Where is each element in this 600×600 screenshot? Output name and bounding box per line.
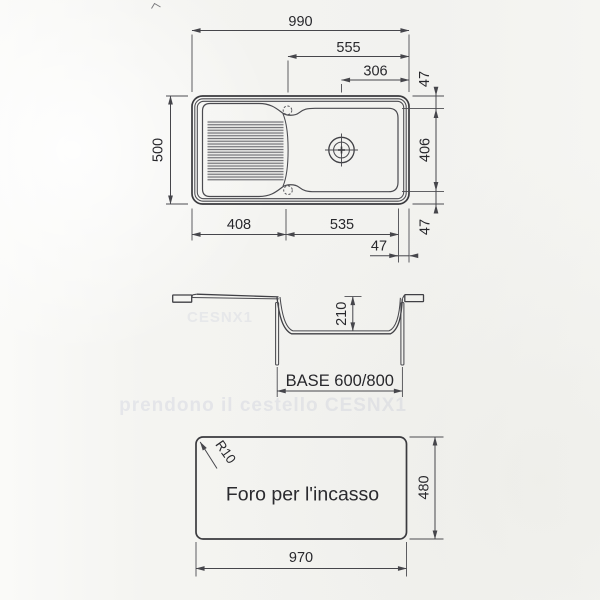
drainboard-surface-under bbox=[192, 298, 279, 299]
dim-990-label: 990 bbox=[288, 14, 312, 30]
radius-label: R10 bbox=[212, 437, 238, 466]
dim-rim-right-label: 47 bbox=[371, 239, 387, 255]
counter-edge-right bbox=[405, 295, 424, 302]
dim-970-label: 970 bbox=[289, 550, 313, 566]
drainboard-ribs bbox=[208, 121, 284, 182]
dim-bowl-span: 555 bbox=[288, 40, 409, 93]
drain-symbol-icon bbox=[325, 134, 358, 167]
dim-408-label: 408 bbox=[227, 217, 251, 233]
base-label: BASE 600/800 bbox=[286, 372, 394, 390]
dim-406-label: 406 bbox=[418, 138, 434, 162]
dim-rim-top-label: 47 bbox=[417, 71, 433, 87]
dim-rim-bottom-label: 47 bbox=[418, 219, 434, 235]
cutout-caption: Foro per l'incasso bbox=[226, 484, 379, 506]
dim-cutout-width: 970 bbox=[196, 542, 407, 577]
dim-535-label: 535 bbox=[330, 217, 354, 233]
dim-cutout-height: 480 bbox=[410, 437, 444, 539]
plan-view: 990 555 306 500 bbox=[151, 14, 445, 263]
tap-hole-bottom-icon bbox=[284, 186, 293, 195]
dim-bowl-depth: 210 bbox=[334, 297, 362, 331]
drainer-divider-curve bbox=[283, 114, 288, 186]
dim-base: BASE 600/800 bbox=[277, 367, 402, 397]
cutout-view: R10 Foro per l'incasso 480 970 bbox=[196, 437, 444, 577]
dim-306-label: 306 bbox=[363, 64, 387, 80]
cabinet-side-left bbox=[276, 303, 279, 366]
bleedthrough-text-1: CESNX1 bbox=[187, 309, 253, 326]
counter-edge-left bbox=[173, 295, 192, 302]
cabinet-side-right bbox=[401, 303, 404, 366]
dim-drain-offset: 306 bbox=[342, 64, 410, 93]
drainboard-surface bbox=[197, 294, 279, 297]
tap-hole-top-icon bbox=[283, 106, 292, 115]
bleedthrough-text-2: prendono il cestello CESNX1 bbox=[119, 395, 407, 416]
dim-bottom-chain: 408 535 47 bbox=[192, 209, 418, 263]
sink-drawing-canvas: CESNX1 prendono il cestello CESNX1 990 bbox=[0, 0, 600, 600]
dim-555-label: 555 bbox=[336, 40, 360, 56]
scan-artifact-mark bbox=[152, 4, 161, 9]
dim-500-label: 500 bbox=[151, 138, 167, 162]
scanned-technical-drawing: CESNX1 prendono il cestello CESNX1 990 bbox=[0, 0, 600, 600]
dim-210-label: 210 bbox=[334, 302, 350, 326]
dim-480-label: 480 bbox=[417, 475, 433, 499]
dim-overall-depth: 500 bbox=[151, 96, 189, 204]
